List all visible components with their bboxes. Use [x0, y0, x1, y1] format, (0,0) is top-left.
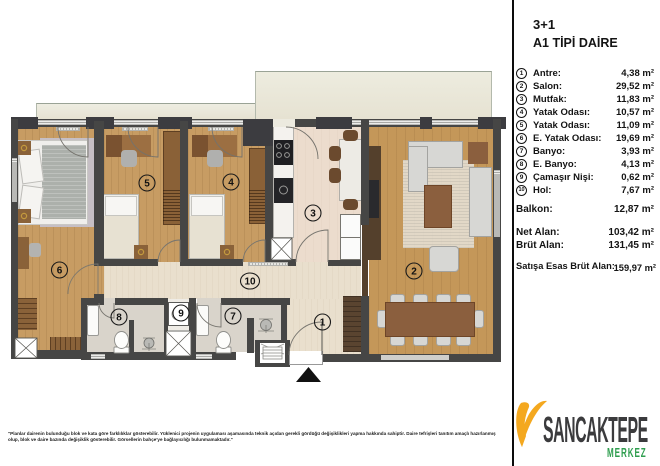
svg-text:2: 2 [411, 267, 417, 278]
svg-text:8: 8 [116, 313, 122, 324]
svg-text:3: 3 [310, 209, 316, 220]
svg-text:10: 10 [244, 277, 256, 288]
svg-text:6: 6 [57, 266, 63, 277]
svg-text:9: 9 [178, 309, 184, 320]
svg-text:1: 1 [320, 318, 326, 329]
svg-text:4: 4 [228, 178, 234, 189]
svg-text:5: 5 [144, 179, 150, 190]
svg-text:7: 7 [230, 312, 236, 323]
